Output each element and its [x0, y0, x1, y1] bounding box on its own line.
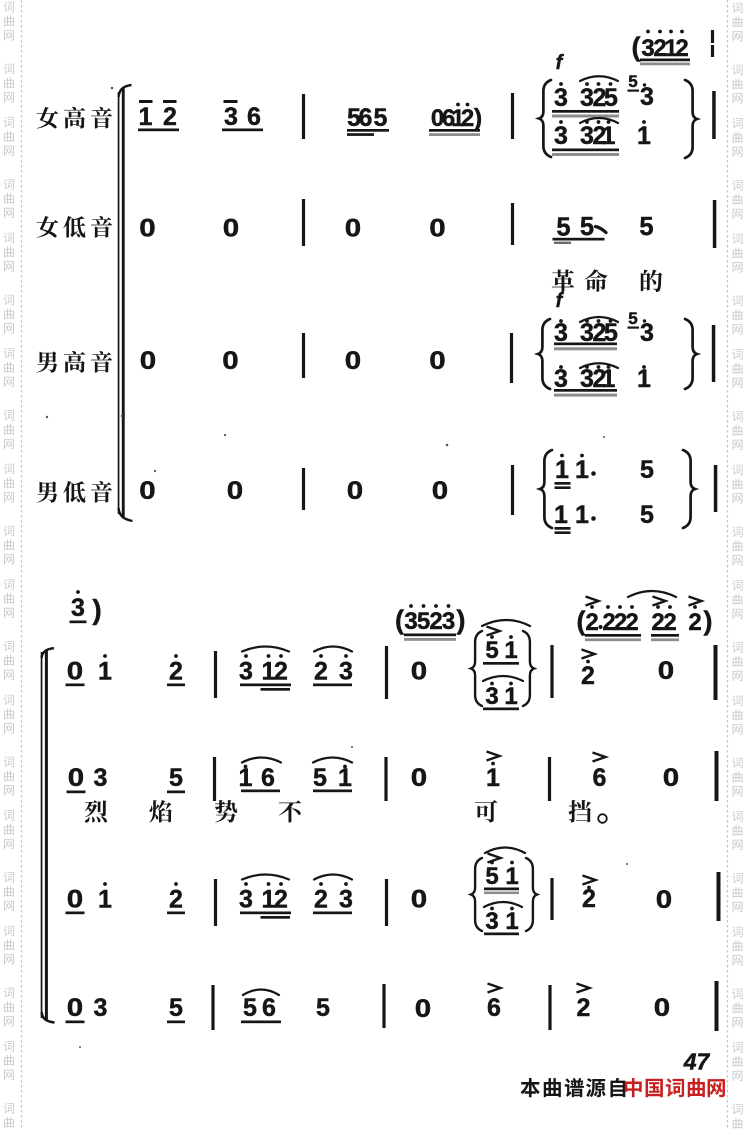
- svg-text:5: 5: [169, 764, 183, 792]
- svg-text:2: 2: [274, 658, 288, 686]
- svg-text:0: 0: [139, 214, 155, 242]
- svg-text:0: 0: [663, 763, 679, 791]
- svg-text:6: 6: [262, 994, 276, 1022]
- svg-text:0: 0: [140, 346, 156, 374]
- svg-text:5: 5: [485, 637, 498, 664]
- svg-text:3: 3: [554, 122, 568, 150]
- svg-text:2: 2: [581, 662, 595, 690]
- svg-text:3: 3: [640, 83, 654, 111]
- svg-text:3: 3: [485, 683, 498, 710]
- svg-text:5: 5: [316, 994, 330, 1022]
- svg-text:1: 1: [602, 365, 616, 393]
- svg-text:5: 5: [640, 501, 654, 529]
- svg-text:3: 3: [94, 994, 108, 1022]
- svg-text:0: 0: [347, 476, 363, 504]
- svg-text:0: 0: [345, 214, 361, 242]
- svg-text:2: 2: [688, 609, 701, 636]
- svg-text:2: 2: [274, 886, 288, 914]
- svg-text:0: 0: [67, 993, 83, 1021]
- svg-text:3: 3: [339, 886, 353, 914]
- svg-text:2: 2: [585, 609, 598, 636]
- svg-text:0: 0: [411, 885, 427, 913]
- svg-text:2: 2: [663, 609, 676, 636]
- svg-text:3: 3: [485, 908, 498, 935]
- svg-text:2: 2: [169, 658, 183, 686]
- svg-text:1: 1: [637, 122, 651, 150]
- svg-text:0: 0: [411, 657, 427, 685]
- svg-text:(: (: [577, 606, 586, 636]
- svg-text:3: 3: [640, 319, 654, 347]
- svg-text:5: 5: [556, 214, 570, 242]
- svg-text:5: 5: [313, 764, 327, 792]
- svg-text:0: 0: [345, 346, 361, 374]
- svg-text:6: 6: [261, 764, 275, 792]
- svg-text:5: 5: [604, 84, 618, 112]
- svg-text:1: 1: [554, 501, 568, 529]
- svg-text:3: 3: [554, 365, 568, 393]
- svg-text:1: 1: [139, 103, 153, 131]
- svg-text:0: 0: [429, 346, 445, 374]
- svg-text:(: (: [632, 32, 641, 62]
- svg-text:2: 2: [461, 105, 474, 132]
- svg-text:3: 3: [224, 103, 238, 131]
- svg-text:0: 0: [223, 214, 239, 242]
- svg-text:1: 1: [602, 122, 616, 150]
- svg-text:1: 1: [637, 365, 651, 393]
- svg-text:0: 0: [658, 656, 674, 684]
- svg-text:5: 5: [243, 994, 257, 1022]
- svg-text:2: 2: [625, 609, 638, 636]
- svg-text:3: 3: [339, 658, 353, 686]
- svg-text:1: 1: [505, 863, 518, 890]
- svg-text:3: 3: [94, 764, 108, 792]
- svg-text:6: 6: [359, 104, 373, 132]
- svg-text:2: 2: [429, 608, 442, 635]
- svg-text:2: 2: [169, 886, 183, 914]
- svg-text:1: 1: [555, 456, 569, 484]
- svg-text:f: f: [556, 290, 565, 312]
- svg-text:5: 5: [628, 72, 637, 91]
- svg-text:0: 0: [654, 993, 670, 1021]
- svg-text:): ): [457, 605, 466, 635]
- svg-text:0: 0: [411, 763, 427, 791]
- svg-text:1: 1: [505, 908, 518, 935]
- svg-text:0: 0: [656, 885, 672, 913]
- svg-text:(: (: [395, 605, 404, 635]
- svg-text:): ): [92, 594, 101, 625]
- svg-text:6: 6: [487, 994, 501, 1022]
- svg-text:2: 2: [577, 994, 591, 1022]
- svg-text:5: 5: [169, 994, 183, 1022]
- svg-text:5: 5: [485, 863, 498, 890]
- svg-text:5: 5: [640, 456, 654, 484]
- svg-text:2: 2: [163, 103, 177, 131]
- svg-text:47: 47: [683, 1049, 711, 1075]
- svg-text:3: 3: [239, 658, 253, 686]
- svg-text:1: 1: [98, 658, 112, 686]
- svg-text:1: 1: [338, 764, 352, 792]
- svg-text:5: 5: [417, 608, 430, 635]
- svg-text:2: 2: [675, 35, 688, 62]
- svg-text:0: 0: [222, 346, 238, 374]
- svg-text:1: 1: [575, 456, 589, 484]
- svg-text:2: 2: [314, 658, 328, 686]
- svg-text:6: 6: [593, 764, 607, 792]
- svg-text:3: 3: [71, 594, 85, 622]
- svg-text:1: 1: [239, 764, 253, 792]
- svg-text:2: 2: [582, 885, 596, 913]
- svg-text:5: 5: [628, 309, 637, 328]
- svg-text:): ): [704, 606, 713, 636]
- svg-text:3: 3: [239, 886, 253, 914]
- svg-text:6: 6: [247, 103, 261, 131]
- svg-text:3: 3: [442, 608, 455, 635]
- svg-text:1: 1: [98, 886, 112, 914]
- svg-text:f: f: [556, 52, 565, 74]
- svg-text:2: 2: [314, 886, 328, 914]
- svg-text:5: 5: [639, 213, 653, 241]
- svg-text:3: 3: [554, 84, 568, 112]
- svg-text:0: 0: [227, 476, 243, 504]
- svg-text:5: 5: [374, 104, 388, 132]
- svg-text:0: 0: [432, 476, 448, 504]
- svg-text:): ): [474, 104, 482, 132]
- svg-text:0: 0: [67, 885, 83, 913]
- svg-text:0: 0: [429, 214, 445, 242]
- svg-text:0: 0: [68, 763, 84, 791]
- svg-text:0: 0: [415, 994, 431, 1022]
- svg-text:1: 1: [486, 764, 500, 792]
- svg-text:5: 5: [580, 213, 594, 241]
- svg-text:0: 0: [139, 476, 155, 504]
- svg-text:1: 1: [504, 637, 517, 664]
- svg-text:3: 3: [404, 608, 417, 635]
- svg-text:1: 1: [575, 501, 589, 529]
- svg-text:0: 0: [67, 657, 83, 685]
- svg-text:1: 1: [504, 683, 517, 710]
